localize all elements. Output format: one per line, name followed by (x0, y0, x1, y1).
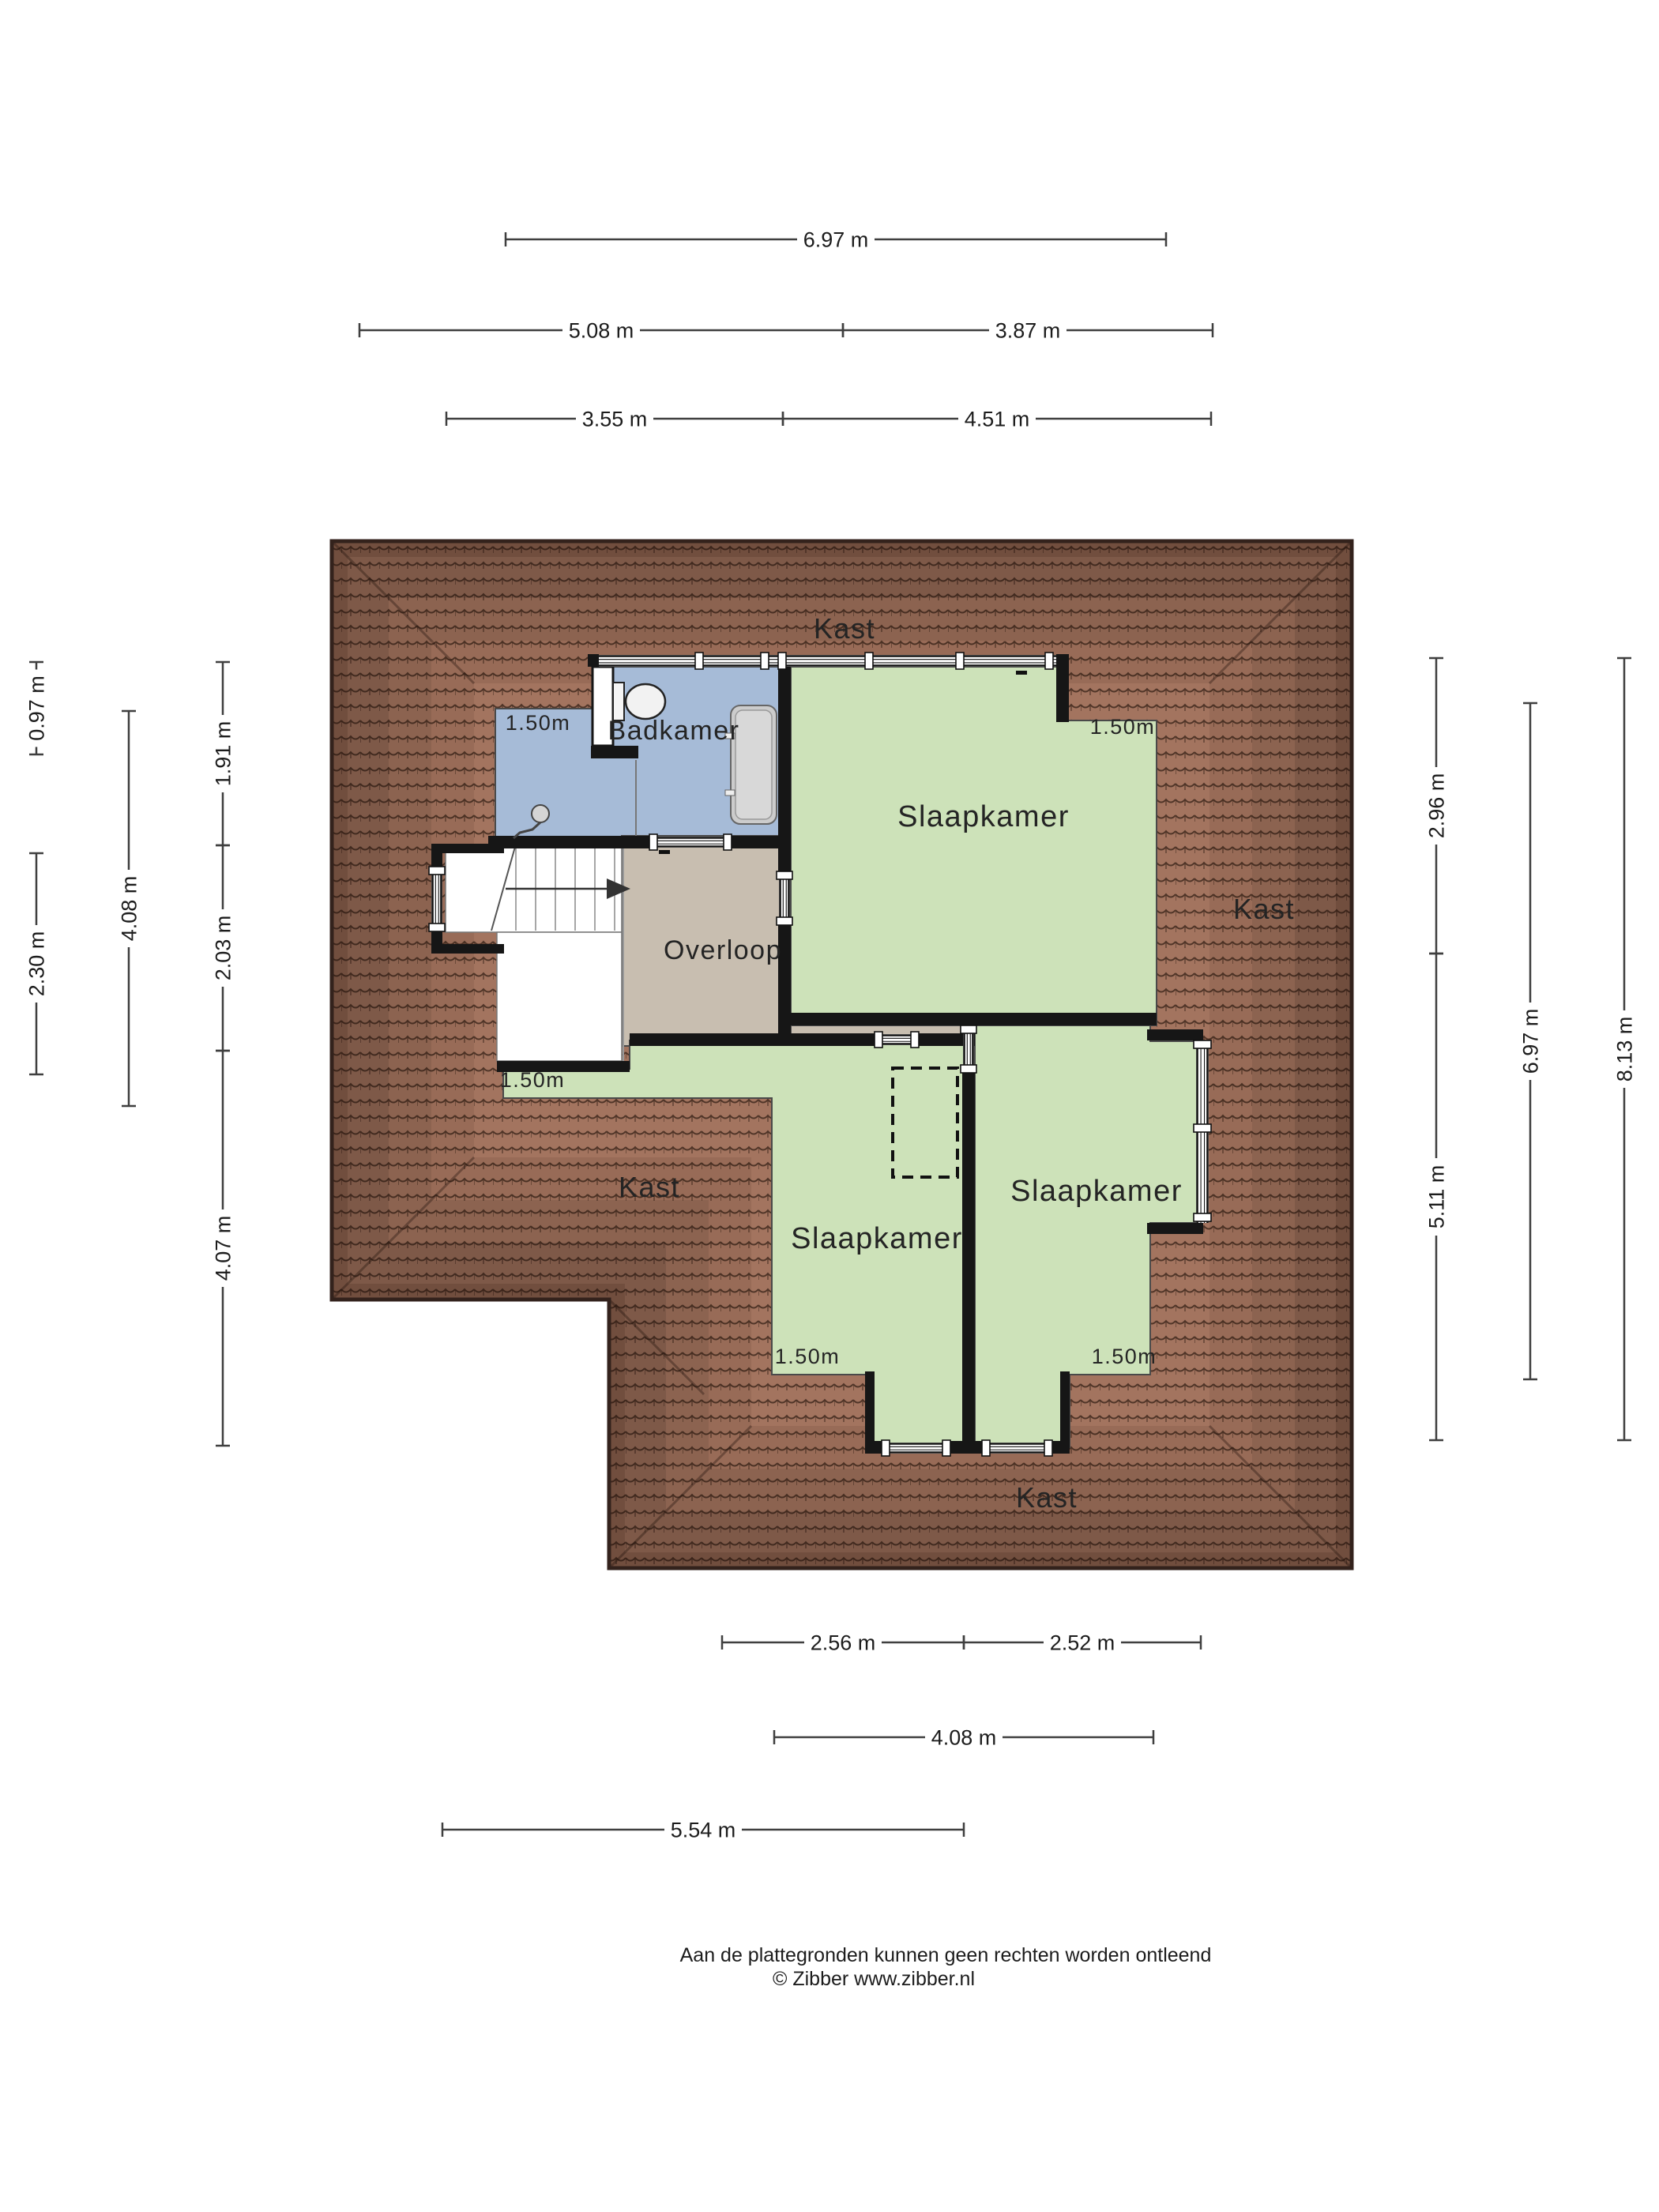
dimension-text: 5.08 m (569, 318, 634, 342)
dimension-label: 4.08 m (116, 870, 141, 947)
floorplan-drawing: Kast1.50mBadkamerSlaapkamer1.50mKastOver… (0, 0, 1659, 2212)
wall (731, 836, 791, 848)
toilet-icon (613, 683, 624, 720)
door-bedroom-top (777, 871, 792, 925)
dimension-label: 0.97 m (24, 670, 49, 747)
wall (488, 836, 650, 848)
stairwell-void (497, 932, 622, 1061)
wall (962, 1073, 975, 1454)
kast-bottom-label: Kast (1016, 1481, 1078, 1514)
dimension-label: 5.54 m (664, 1817, 742, 1842)
vent-tick (659, 850, 670, 854)
dimension-label: 4.08 m (925, 1725, 1003, 1750)
wall (630, 1033, 875, 1046)
slaapkamer-right-label: Slaapkamer (1010, 1175, 1183, 1208)
dimension-text: 6.97 m (1518, 1009, 1542, 1074)
dimension-label: 3.87 m (989, 318, 1066, 343)
dimension-text: 3.87 m (995, 318, 1061, 342)
window-left-wall (429, 867, 445, 931)
dimension-label: 3.55 m (576, 406, 653, 431)
height-marker: 1.50m (506, 711, 571, 735)
dimension-text: 5.54 m (671, 1818, 736, 1841)
dimension-text: 4.51 m (965, 407, 1030, 431)
dimension-text: 6.97 m (803, 228, 869, 251)
slaapkamer-top-label: Slaapkamer (897, 800, 1070, 833)
dimension-text: 1.91 m (211, 721, 235, 787)
dimension-label: 2.03 m (210, 909, 235, 987)
dimension-label: 2.52 m (1044, 1630, 1121, 1655)
height-marker: 1.50m (1092, 1345, 1157, 1368)
window-band-top (599, 653, 1056, 669)
wall (865, 1441, 882, 1454)
height-marker: 1.50m (500, 1068, 566, 1092)
dimension-label: 2.96 m (1424, 767, 1449, 845)
floorplan-page: Kast1.50mBadkamerSlaapkamer1.50mKastOver… (0, 0, 1659, 2212)
dimension-text: 3.55 m (582, 407, 648, 431)
footer-copyright: © Zibber www.zibber.nl (773, 1968, 975, 1990)
dimension-text: 2.56 m (811, 1631, 876, 1654)
wall (950, 1441, 962, 1454)
dimension-text: 5.11 m (1424, 1165, 1448, 1229)
faucet-icon (725, 790, 735, 796)
wall (778, 1013, 1157, 1025)
dimension-label: 5.08 m (562, 318, 640, 343)
height-marker: 1.50m (775, 1345, 841, 1368)
overloop-label: Overloop (664, 935, 782, 965)
dimension-label: 4.07 m (210, 1209, 235, 1287)
wall (433, 844, 504, 853)
dimension-label: 6.97 m (1518, 1003, 1543, 1080)
door-landing-bottom (875, 1032, 919, 1048)
dimension-l1: 0.97 m (24, 662, 49, 754)
wall (591, 746, 638, 758)
dimension-text: 4.07 m (211, 1216, 235, 1281)
wall (1052, 1441, 1070, 1454)
dimension-label: 2.30 m (24, 925, 49, 1003)
dimension-label: 5.11 m (1424, 1158, 1449, 1236)
window-bottom-left (882, 1440, 950, 1456)
dimension-label: 2.56 m (804, 1630, 882, 1655)
wall (433, 944, 504, 954)
toilet-icon (626, 684, 665, 719)
bathtub-icon (735, 710, 772, 819)
kast-top-label: Kast (814, 612, 875, 645)
dimension-text: 2.03 m (211, 916, 235, 981)
wall (1056, 654, 1069, 722)
door-bedroom-right (961, 1025, 976, 1073)
kast-left-label: Kast (619, 1171, 680, 1203)
dimension-text: 8.13 m (1612, 1017, 1636, 1082)
vent-tick (1016, 671, 1027, 675)
dimension-text: 0.97 m (24, 675, 48, 741)
footer-disclaimer: Aan de plattegronden kunnen geen rechten… (680, 1944, 1212, 1966)
height-marker: 1.50m (1090, 715, 1156, 739)
dimension-text: 2.52 m (1050, 1631, 1115, 1654)
door-bathroom (649, 834, 732, 850)
sink-icon (532, 805, 549, 822)
dimension-text: 4.08 m (931, 1725, 997, 1749)
dimension-text: 4.08 m (117, 876, 141, 942)
badkamer-label: Badkamer (608, 716, 740, 746)
window-dormer-right (1194, 1040, 1211, 1223)
window-bottom-right (982, 1440, 1052, 1456)
kast-right-label: Kast (1233, 893, 1295, 925)
dimension-label: 4.51 m (958, 406, 1036, 431)
dimension-text: 2.30 m (24, 931, 48, 997)
wall (1147, 1223, 1203, 1234)
dimension-label: 6.97 m (797, 227, 875, 252)
wall (588, 654, 599, 667)
dimension-text: 2.96 m (1424, 773, 1448, 839)
dimension-label: 1.91 m (210, 715, 235, 792)
dimension-label: 8.13 m (1612, 1010, 1637, 1088)
wall (431, 930, 442, 954)
slaapkamer-mid-label: Slaapkamer (791, 1222, 963, 1255)
wall (1147, 1029, 1203, 1040)
